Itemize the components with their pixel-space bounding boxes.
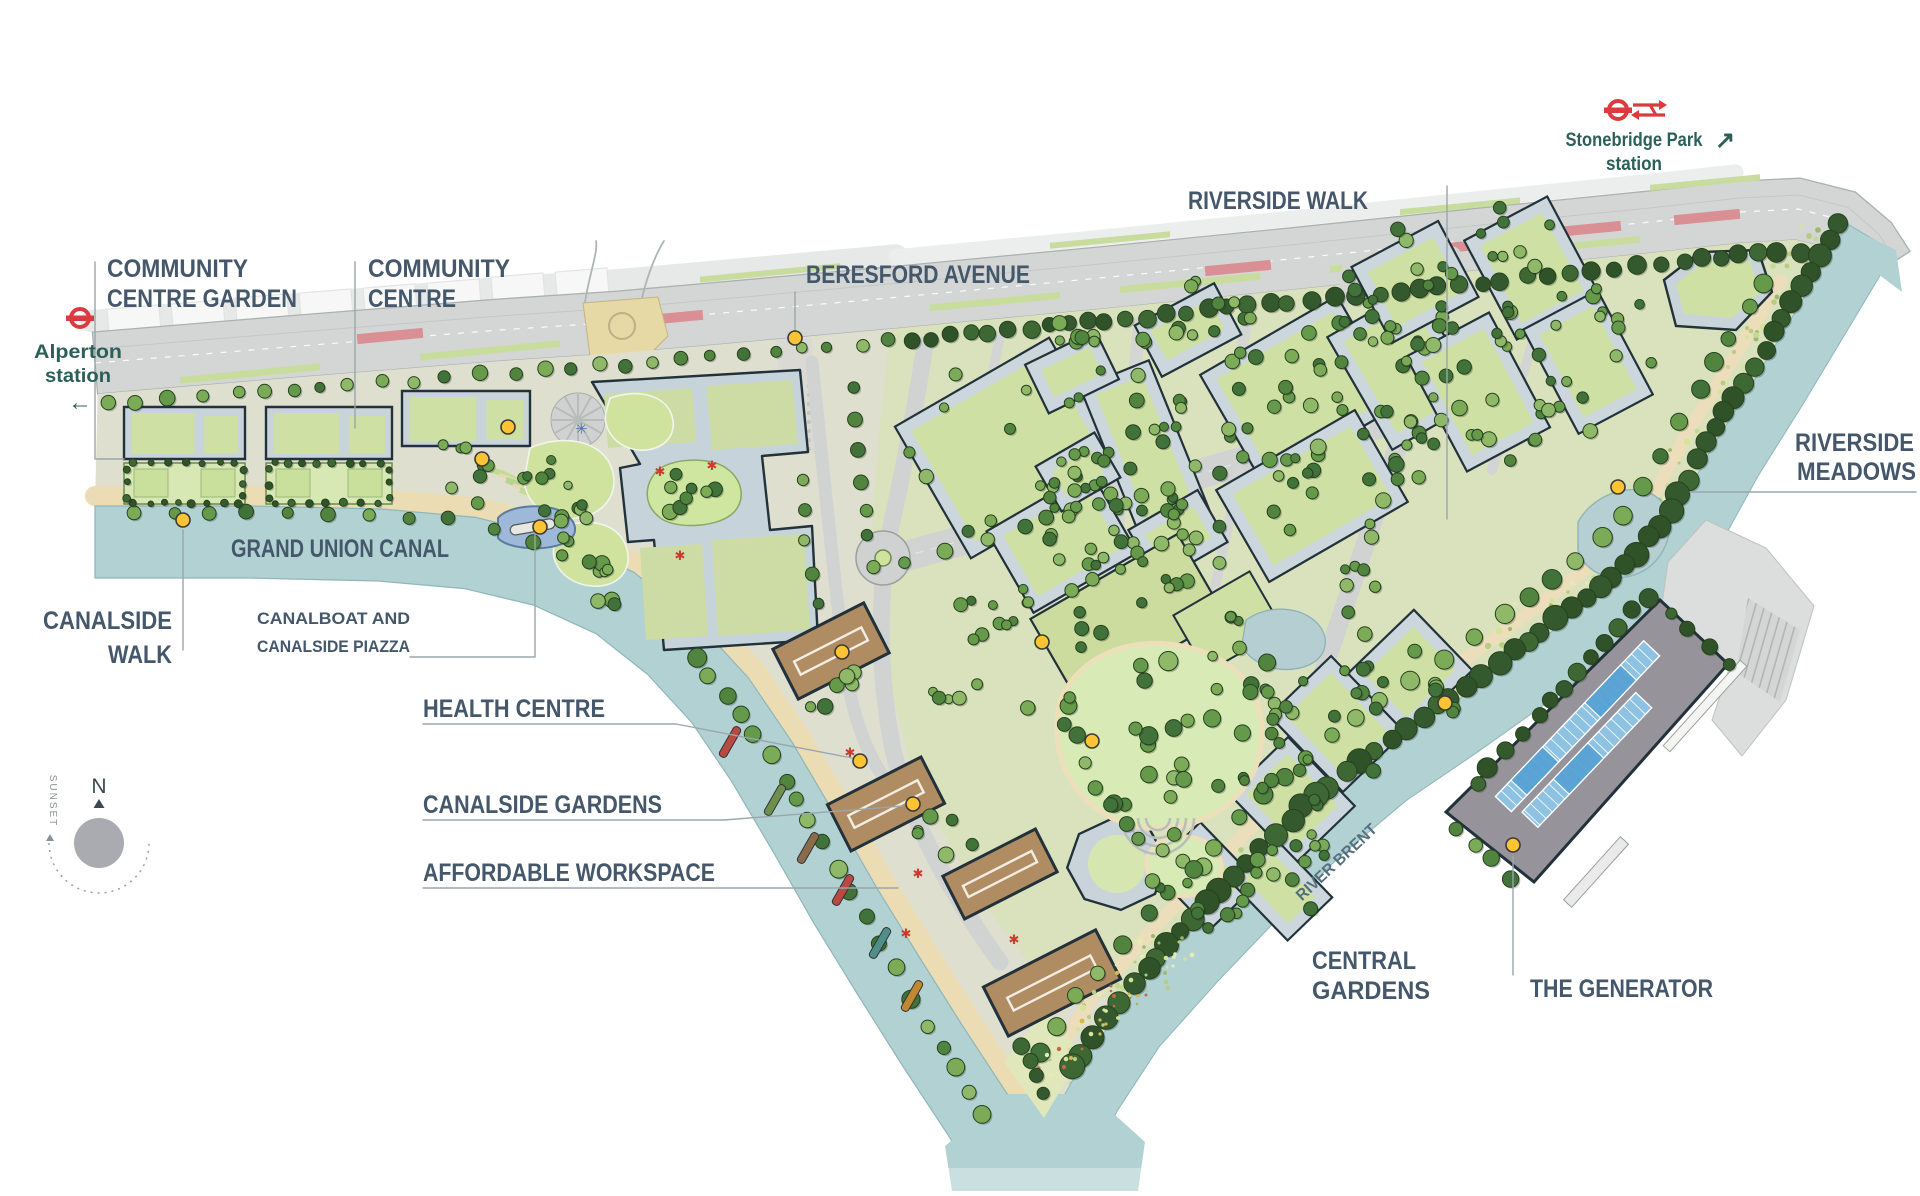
svg-text:RIVERSIDE WALK: RIVERSIDE WALK bbox=[1188, 187, 1368, 215]
svg-text:GRAND UNION CANAL: GRAND UNION CANAL bbox=[231, 535, 449, 563]
svg-text:CANALBOAT AND: CANALBOAT AND bbox=[257, 609, 410, 628]
svg-text:SUNSET: SUNSET bbox=[47, 775, 58, 828]
svg-text:BERESFORD AVENUE: BERESFORD AVENUE bbox=[806, 261, 1030, 289]
svg-text:CANALSIDE: CANALSIDE bbox=[43, 607, 172, 635]
svg-text:WALK: WALK bbox=[108, 641, 172, 669]
svg-text:CENTRAL: CENTRAL bbox=[1312, 947, 1416, 975]
svg-text:✱: ✱ bbox=[901, 926, 912, 941]
svg-text:AFFORDABLE WORKSPACE: AFFORDABLE WORKSPACE bbox=[423, 859, 715, 887]
svg-text:Stonebridge Park: Stonebridge Park bbox=[1566, 130, 1703, 151]
svg-text:✱: ✱ bbox=[675, 548, 686, 563]
svg-text:RIVERSIDE: RIVERSIDE bbox=[1795, 429, 1914, 457]
svg-text:station: station bbox=[1606, 154, 1662, 175]
svg-text:CENTRE GARDEN: CENTRE GARDEN bbox=[107, 285, 297, 313]
svg-text:✱: ✱ bbox=[913, 866, 924, 881]
svg-text:CANALSIDE PIAZZA: CANALSIDE PIAZZA bbox=[257, 637, 410, 656]
svg-text:Alperton: Alperton bbox=[34, 342, 122, 363]
svg-text:←: ← bbox=[68, 389, 92, 416]
svg-text:CENTRE: CENTRE bbox=[368, 285, 456, 313]
svg-text:THE GENERATOR: THE GENERATOR bbox=[1530, 975, 1713, 1003]
svg-text:↗: ↗ bbox=[1715, 127, 1735, 154]
svg-text:GARDENS: GARDENS bbox=[1312, 977, 1430, 1005]
svg-text:CANALSIDE GARDENS: CANALSIDE GARDENS bbox=[423, 791, 662, 819]
svg-text:station: station bbox=[45, 366, 111, 387]
svg-text:✳: ✳ bbox=[575, 421, 588, 438]
svg-text:✱: ✱ bbox=[655, 464, 666, 479]
svg-text:HEALTH CENTRE: HEALTH CENTRE bbox=[423, 695, 605, 723]
svg-text:COMMUNITY: COMMUNITY bbox=[368, 255, 510, 283]
svg-text:✱: ✱ bbox=[1009, 932, 1020, 947]
svg-text:MEADOWS: MEADOWS bbox=[1797, 458, 1916, 486]
svg-text:N: N bbox=[91, 775, 106, 798]
svg-text:✱: ✱ bbox=[707, 458, 718, 473]
svg-text:COMMUNITY: COMMUNITY bbox=[107, 255, 248, 283]
